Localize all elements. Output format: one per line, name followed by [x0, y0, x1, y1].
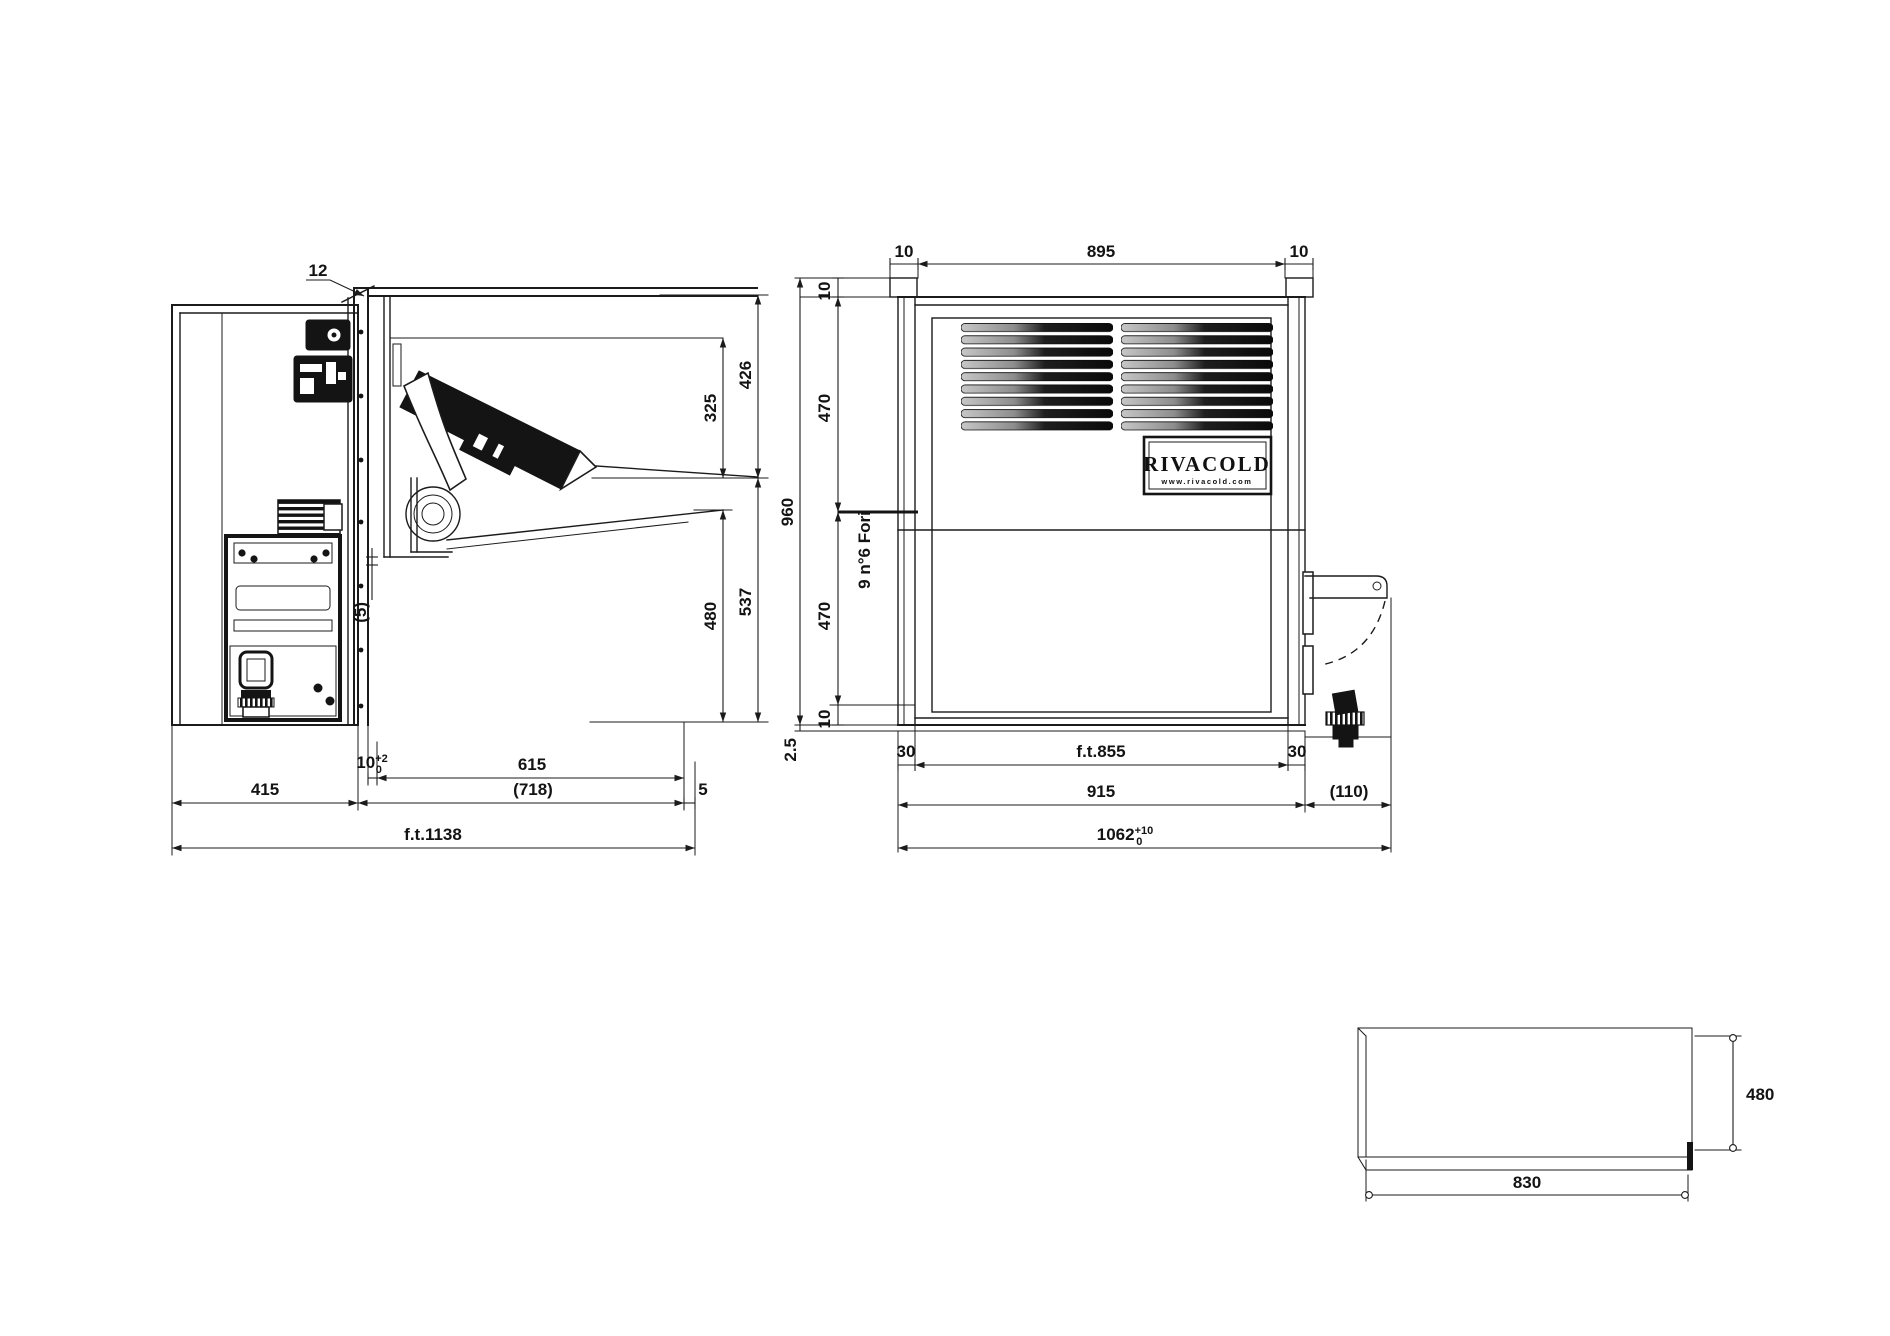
support-bracket — [1305, 576, 1387, 598]
dim-plan-width: 830 — [1366, 1160, 1689, 1201]
dim-plan-depth-label: 480 — [1746, 1085, 1774, 1104]
front-view: RIVACOLD www.rivacold.com — [778, 242, 1391, 852]
front-bottom-dimensions: 30 f.t.855 30 915 (110) 1 — [897, 725, 1391, 852]
dim-top-right-flange: 10 — [1285, 242, 1313, 270]
dim-right-flange-label: 30 — [1288, 742, 1307, 761]
dim-external-depth-label: 415 — [251, 780, 279, 799]
drain-valve — [1326, 690, 1364, 747]
hinge-plate-lower — [1303, 646, 1313, 694]
brand-logo-text: RIVACOLD — [1143, 452, 1271, 476]
hinge-plate-upper — [1303, 572, 1313, 634]
front-left-dimensions: 960 2.5 10 470 470 10 — [778, 278, 918, 762]
electrical-box-top — [306, 320, 350, 350]
dim-plan-depth: 480 — [1695, 1035, 1774, 1152]
frame-left-post — [890, 278, 917, 725]
front-top-dimensions: 10 895 10 — [890, 242, 1313, 278]
dim-ceiling-section: 426 — [736, 295, 758, 478]
dim-opening-width-label: f.t.855 — [1076, 742, 1125, 761]
dim-recess-label: 10+20 — [356, 753, 387, 776]
outlet-line — [596, 466, 758, 477]
condenser-grille-right — [1121, 322, 1273, 432]
dim-top-width-label: 895 — [1087, 242, 1115, 261]
dim-room-opening-label: 615 — [518, 755, 546, 774]
fixing-holes-note-label: 9 n°6 Fori — [855, 511, 874, 589]
sensor-slot — [393, 344, 401, 386]
drain-position-marker — [1687, 1142, 1693, 1170]
dim-left-flange: 30 — [897, 742, 916, 771]
dim-recess: 10+20 — [356, 753, 387, 784]
side-view: 12 — [172, 261, 768, 855]
side-right-dimensions: 325 480 426 537 — [590, 295, 768, 722]
dim-body-width-label: 915 — [1087, 782, 1115, 801]
compressor-foot — [238, 652, 274, 717]
dim-room-opening: 615 — [377, 755, 684, 778]
dim-flap-gap-label: (5) — [351, 602, 370, 623]
dim-overall-depth: f.t.1138 — [172, 825, 695, 848]
dim-front-lip: 5 — [684, 780, 708, 809]
dim-top-right-flange-label: 10 — [1290, 242, 1309, 261]
condenser-grille-left — [961, 322, 1113, 432]
dim-total-width-label: 1062+100 — [1097, 825, 1154, 848]
drip-tray-line — [447, 510, 723, 540]
dim-base-gap-label: 2.5 — [781, 738, 800, 762]
brand-logo-website: www.rivacold.com — [1160, 477, 1252, 486]
side-fittings — [1303, 572, 1391, 747]
evaporator-unit — [384, 296, 758, 557]
dim-base-gap: 2.5 — [781, 725, 800, 762]
fixing-holes-note: 9 n°6 Fori — [838, 511, 918, 589]
dim-cap-height: 10 — [815, 278, 844, 300]
plan-view: 480 830 — [1358, 1028, 1774, 1201]
dim-overall-depth-label: f.t.1138 — [404, 825, 462, 844]
logo-plate: RIVACOLD www.rivacold.com — [1143, 437, 1271, 494]
left-post-cap — [890, 278, 917, 297]
dim-lower-overall: 537 — [736, 478, 758, 722]
dim-upper-half-label: 470 — [815, 394, 834, 422]
dim-total-width: 1062+100 — [898, 825, 1391, 848]
dim-opening-width: f.t.855 — [915, 742, 1288, 765]
condenser-block — [278, 500, 342, 536]
dim-lower-overall-label: 537 — [736, 588, 755, 616]
base-outline — [1358, 1028, 1693, 1170]
dim-internal-depth-label: (718) — [513, 780, 553, 799]
dim-internal-depth: (718) — [358, 780, 684, 803]
dim-valve-extension: (110) — [1305, 782, 1391, 805]
right-post-cap — [1286, 278, 1313, 297]
dim-panel-thickness: 12 — [306, 261, 364, 296]
dim-upper-half: 470 — [815, 297, 838, 512]
dim-evaporator-drop-label: 325 — [701, 394, 720, 422]
door-swing-arc — [1321, 601, 1385, 665]
dim-plan-width-label: 830 — [1513, 1173, 1541, 1192]
side-bottom-dimensions: 10+20 615 415 (718) 5 — [172, 722, 708, 855]
dim-ceiling-section-label: 426 — [736, 361, 755, 389]
dim-panel-thickness-label: 12 — [309, 261, 328, 280]
dim-external-depth: 415 — [172, 780, 358, 803]
compressor-compartment — [226, 536, 340, 720]
dim-top-left-flange-label: 10 — [895, 242, 914, 261]
dim-lower-clearance-label: 480 — [701, 602, 720, 630]
dim-overall-height-label: 960 — [778, 498, 797, 526]
dim-front-lip-label: 5 — [698, 780, 707, 799]
dim-lower-half: 470 — [815, 512, 838, 705]
dim-valve-extension-label: (110) — [1330, 782, 1369, 801]
control-box — [294, 356, 352, 402]
drawing-page: 12 — [0, 0, 1890, 1336]
panel-screws — [359, 330, 364, 709]
dim-overall-height: 960 — [778, 278, 800, 725]
dim-lower-clearance: 480 — [701, 510, 723, 722]
dim-right-flange: 30 — [1288, 742, 1307, 771]
dim-body-width: 915 — [898, 782, 1305, 805]
dim-bottom-flange-label: 10 — [815, 710, 834, 729]
dim-top-left-flange: 10 — [890, 242, 918, 270]
dim-top-width: 895 — [918, 242, 1285, 264]
dim-evaporator-drop: 325 — [701, 338, 723, 478]
dim-flap-gap: (5) — [351, 548, 378, 623]
dim-bottom-flange: 10 — [815, 705, 844, 728]
dim-left-flange-label: 30 — [897, 742, 916, 761]
dim-cap-height-label: 10 — [815, 282, 834, 301]
dim-lower-half-label: 470 — [815, 602, 834, 630]
drawing-canvas: 12 — [0, 0, 1890, 1336]
